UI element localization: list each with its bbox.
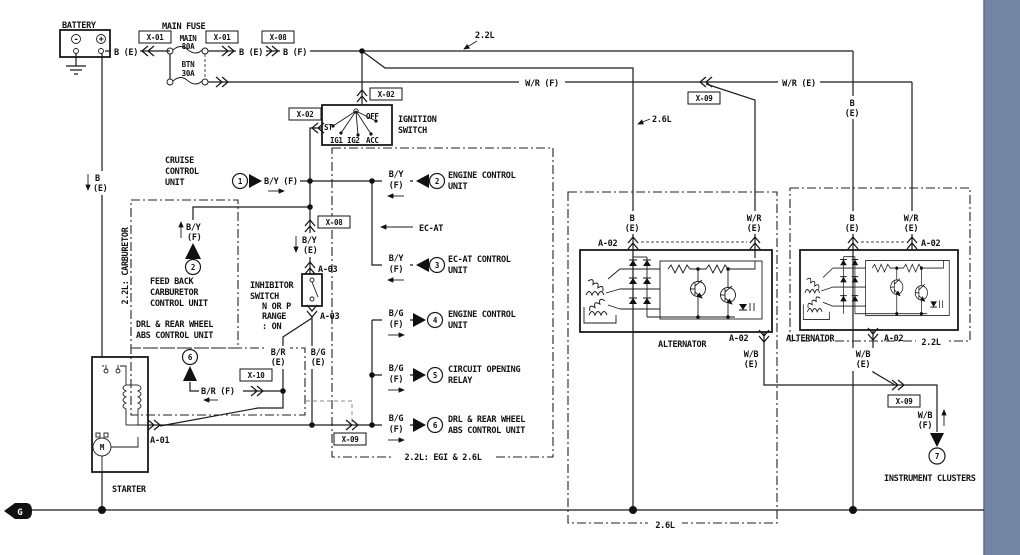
ecat-unit-label-1: EC-AT CONTROL [448, 255, 511, 265]
connector-a01: A-01 [150, 436, 169, 446]
wire-label-wre: W/R (E) [782, 79, 816, 89]
zone-22l-label: 2.2L [921, 338, 940, 348]
wire-wb-f-2: (F) [918, 421, 932, 431]
connector-x08-top: X-08 [270, 33, 288, 42]
wire-label-be-2: B (E) [239, 48, 263, 58]
alt2-wire-b-top-e: (E) [845, 109, 859, 119]
zone-26l-label: 2.6L [655, 521, 674, 531]
alt1-wire-wb: W/B [744, 350, 759, 360]
alt2-wire-b: B [850, 214, 855, 224]
connector-x02-left: X-02 [297, 110, 314, 119]
ref-2-egi: 2 [435, 177, 439, 186]
ignition-pos-off: OFF [366, 112, 379, 121]
wire-label-br-e: (E) [271, 358, 285, 368]
main-fuse-rating: 80A [182, 42, 195, 51]
inhibitor-cond-3: : ON [262, 322, 281, 332]
wire-label-by-ign: B/Y [302, 236, 318, 246]
feedback-label-2: CARBURETOR [150, 288, 199, 298]
wire-wb-f-1: W/B [918, 411, 933, 421]
cruise-label-1: CRUISE [165, 156, 194, 166]
ignition-label-1: IGNITION [398, 115, 437, 125]
alt1-wire-wb-e: (E) [744, 360, 758, 370]
wire-label-bf: B (F) [283, 48, 307, 58]
wire-label-e-left: (E) [93, 184, 107, 194]
connector-x09-right: X-09 [896, 397, 914, 406]
inhibitor-cond-2: RANGE [262, 312, 286, 322]
alt2-wire-wr: W/R [904, 214, 920, 224]
starter-label: STARTER [112, 485, 147, 495]
wire-bg-4: B/G [389, 309, 404, 319]
alt2-wire-wb: W/B [856, 350, 871, 360]
ignition-pos-ig2: IG2 [347, 136, 360, 145]
ignition-label-2: SWITCH [398, 126, 427, 136]
connector-x02-top: X-02 [378, 90, 395, 99]
wire-label-by-feedback: B/Y [186, 223, 202, 233]
engine-unit-2-label-1: ENGINE CONTROL [448, 171, 516, 181]
wire-label-e-ign: (E) [303, 246, 317, 256]
connector-x09-top: X-09 [696, 94, 714, 103]
drl-left-label-1: DRL & REAR WHEEL [136, 320, 213, 330]
inhibitor-label-1: INHIBITOR [250, 281, 295, 291]
ignition-pos-ig1: IG1 [330, 136, 343, 145]
alt2-wire-wb-e: (E) [856, 360, 870, 370]
alt1-wire-wr-e: (E) [747, 224, 761, 234]
connector-a03-bottom: A-03 [320, 312, 339, 322]
wire-label-brf: B/R (F) [201, 387, 235, 397]
connector-x08-mid: X-08 [326, 218, 344, 227]
inhibitor-cond-1: N OR P [262, 302, 291, 312]
connector-x09-bottom: X-09 [342, 435, 360, 444]
alt2-connector-a02-top: A-02 [921, 239, 940, 249]
clusters-label: INSTRUMENT CLUSTERS [884, 474, 976, 484]
alt1-wire-b: B [630, 214, 635, 224]
alt2-wire-b-top: B [850, 99, 855, 109]
wire-f-2: (F) [389, 181, 403, 191]
relay-label-1: CIRCUIT OPENING [448, 365, 520, 375]
connector-x01-right: X-01 [214, 33, 232, 42]
wire-label-f-feedback: (F) [187, 233, 201, 243]
annotation-26l-mid: 2.6L [652, 115, 671, 125]
wire-bg-5: B/G [389, 364, 404, 374]
wire-f-5: (F) [389, 375, 403, 385]
feedback-label-1: FEED BACK [150, 277, 195, 287]
alt1-wire-b-e: (E) [625, 224, 639, 234]
relay-label-2: RELAY [448, 376, 473, 386]
connector-x10: X-10 [248, 371, 266, 380]
drl-egi-label-2: ABS CONTROL UNIT [448, 426, 525, 436]
ecat-unit-label-2: UNIT [448, 266, 467, 276]
wiring-diagram-page: BATTERY - + MAIN FUSE X-01 X-01 X-08 MAI… [0, 0, 1020, 555]
ref-5: 5 [433, 371, 437, 380]
ignition-pos-acc: ACC [366, 136, 379, 145]
drl-left-label-2: ABS CONTROL UNIT [136, 331, 213, 341]
alt2-connector-a02-bottom: A-02 [884, 334, 903, 344]
wire-label-br: B/R [271, 348, 287, 358]
wire-label-be-1: B (E) [114, 48, 138, 58]
alt1-label: ALTERNATOR [658, 340, 707, 350]
cruise-label-3: UNIT [165, 178, 184, 188]
alt2-wire-wr-e: (E) [904, 224, 918, 234]
engine-unit-4-label-2: UNIT [448, 321, 467, 331]
inhibitor-label-2: SWITCH [250, 292, 279, 302]
feedback-label-3: CONTROL UNIT [150, 299, 208, 309]
connector-x01-left: X-01 [147, 33, 165, 42]
wire-label-bg: B/G [311, 348, 326, 358]
wire-f-6: (F) [389, 425, 403, 435]
btn-fuse-name: BTN [182, 60, 195, 69]
battery-plus: + [99, 35, 104, 45]
alt2-wire-b-e: (E) [845, 224, 859, 234]
wire-by-2: B/Y [389, 170, 405, 180]
wire-f-3: (F) [389, 265, 403, 275]
wire-label-bg-e: (E) [311, 358, 325, 368]
wire-bg-6: B/G [389, 414, 404, 424]
alt1-wire-wr: W/R [747, 214, 763, 224]
ref-7: 7 [935, 452, 939, 461]
wire-by-3: B/Y [389, 254, 405, 264]
zone-egi-label: 2.2L: EGI & 2.6L [404, 453, 481, 463]
alt1-connector-a02-top: A-02 [598, 239, 617, 249]
annotation-ecat: EC-AT [419, 224, 443, 234]
drl-egi-label-1: DRL & REAR WHEEL [448, 415, 525, 425]
wire-f-4: (F) [389, 320, 403, 330]
wire-label-b-left: B [95, 174, 100, 184]
wire-label-byf-cruise: B/Y (F) [264, 177, 298, 187]
wire-label-wrf: W/R (F) [525, 79, 559, 89]
engine-unit-4-label-1: ENGINE CONTROL [448, 310, 516, 320]
wiring-diagram: BATTERY - + MAIN FUSE X-01 X-01 X-08 MAI… [0, 0, 1020, 555]
ignition-pos-st: ST [324, 123, 333, 132]
engine-unit-2-label-2: UNIT [448, 182, 467, 192]
right-side-band [984, 0, 1020, 555]
alt1-connector-a02-bottom: A-02 [729, 334, 748, 344]
ref-2-left: 2 [191, 263, 195, 272]
btn-fuse-rating: 30A [182, 69, 195, 78]
battery-minus: - [74, 35, 79, 45]
alt2-label: ALTERNATOR [786, 334, 835, 344]
annotation-22l-top: 2.2L [475, 31, 494, 41]
zone-carburetor-label: 2.2L: CARBURETOR [121, 226, 131, 304]
ground-label: G [17, 508, 22, 518]
cruise-label-2: CONTROL [165, 167, 199, 177]
